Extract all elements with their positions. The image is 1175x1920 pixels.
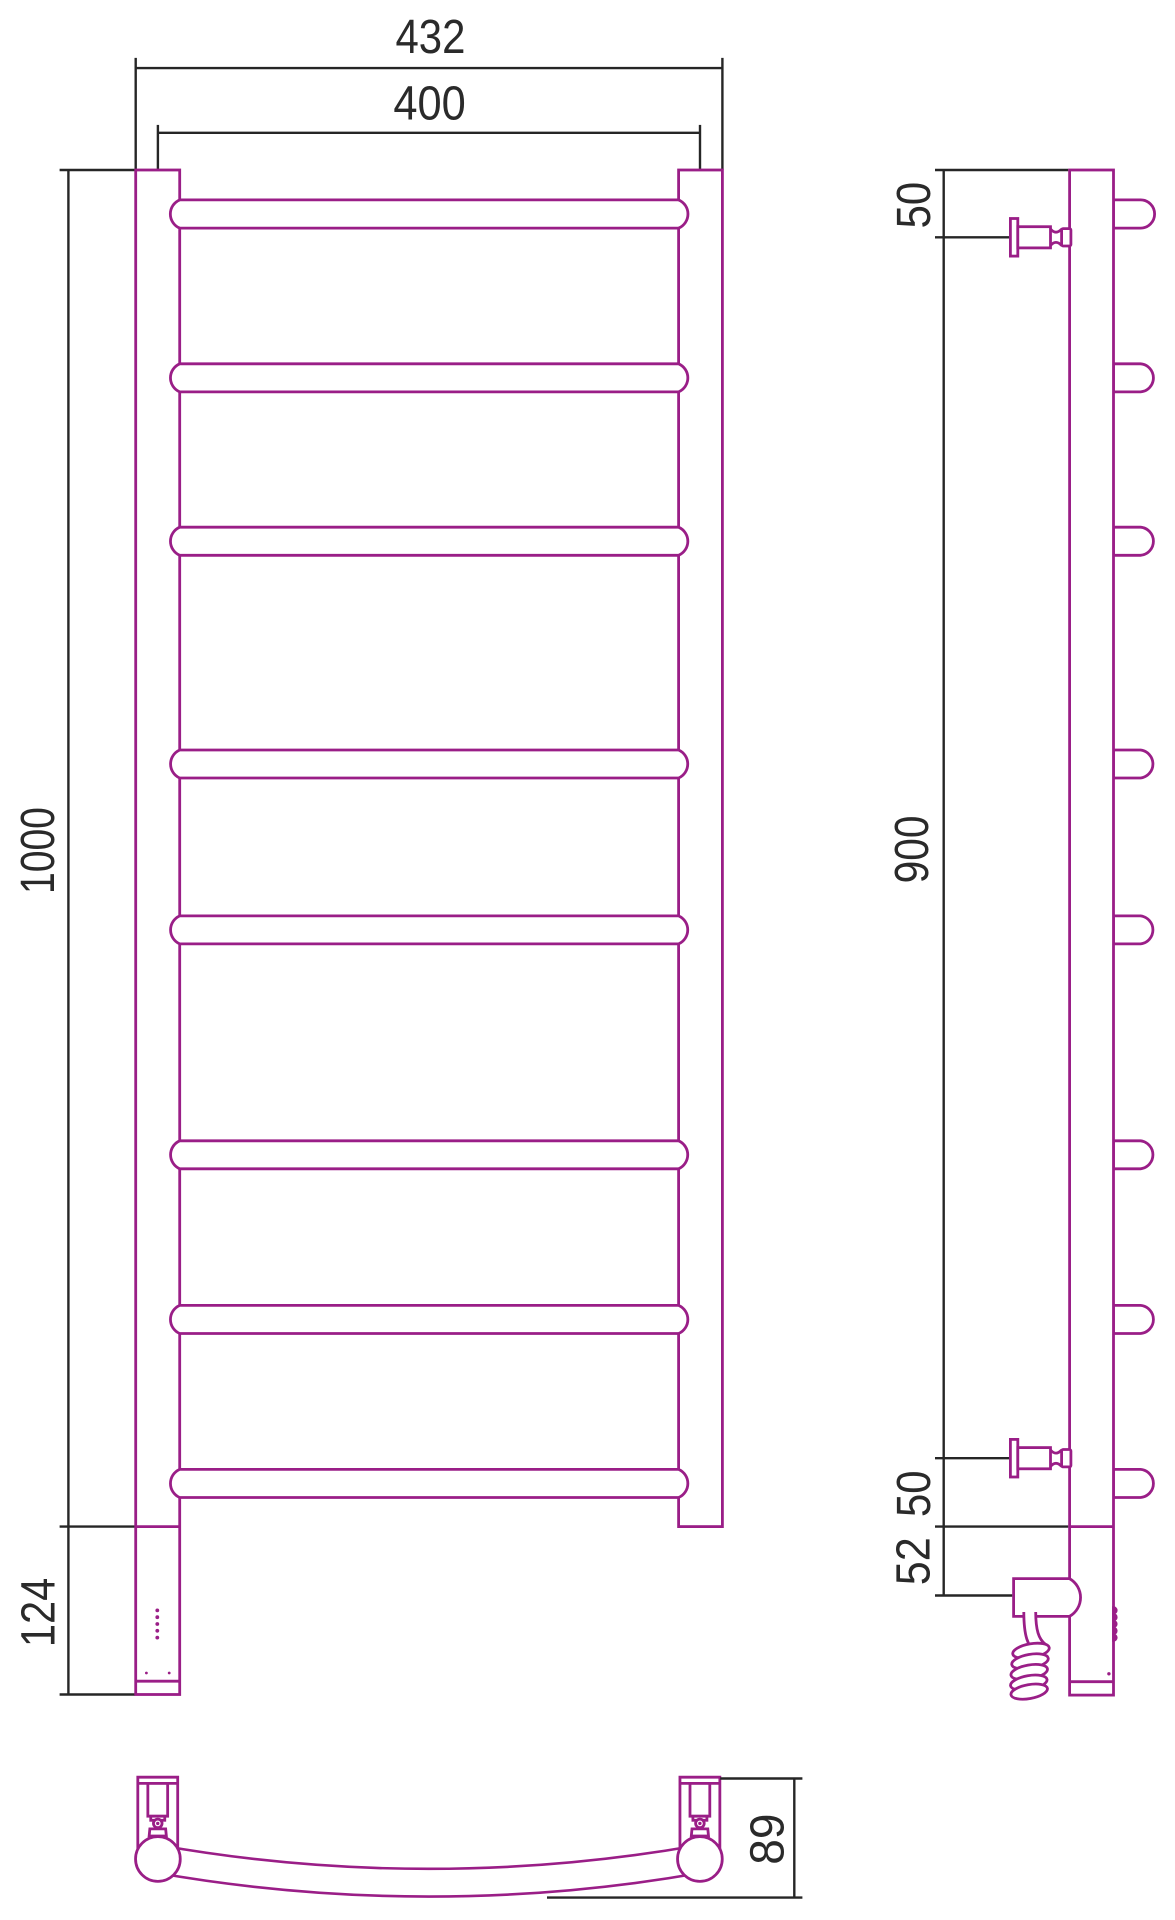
svg-text:124: 124 [12, 1578, 66, 1647]
svg-text:89: 89 [741, 1814, 795, 1865]
svg-text:52: 52 [887, 1537, 941, 1585]
svg-text:50: 50 [887, 182, 941, 229]
svg-text:1000: 1000 [11, 807, 65, 894]
svg-text:900: 900 [885, 816, 939, 884]
svg-text:432: 432 [396, 10, 466, 64]
svg-text:400: 400 [393, 77, 465, 131]
svg-text:50: 50 [887, 1470, 941, 1517]
